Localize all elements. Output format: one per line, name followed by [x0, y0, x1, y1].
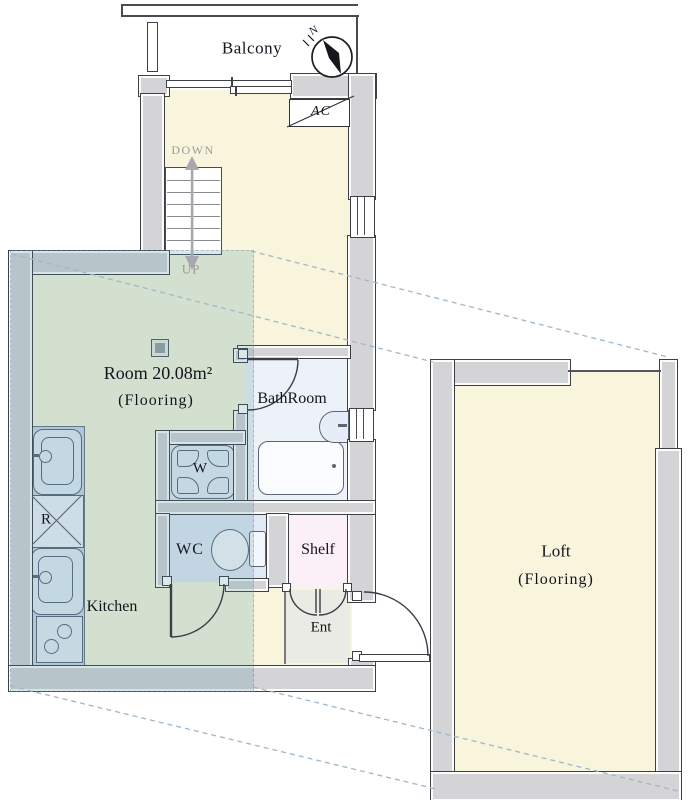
window-mullion	[231, 77, 233, 87]
kitchen-label: Kitchen	[87, 599, 138, 615]
wall	[140, 93, 165, 262]
washer-label: W	[193, 462, 207, 477]
refrigerator-label: R	[41, 513, 51, 528]
compass-north-label: N	[308, 24, 320, 37]
bathtub	[258, 441, 344, 495]
window-glass-line	[364, 197, 365, 235]
floor-plan: Balcony N AC DOWN UP Room 20.08m² (Floor…	[0, 0, 688, 800]
bathtub-drain	[332, 464, 336, 468]
window-glass-line	[363, 409, 364, 439]
door-hinge	[352, 591, 362, 601]
balcony-pier	[147, 22, 158, 72]
door-hinge	[282, 583, 291, 592]
loft-label: Loft	[541, 543, 570, 560]
wall	[655, 448, 682, 800]
wall	[347, 439, 376, 603]
entrance-step-line	[284, 590, 286, 664]
loft-sublabel: (Flooring)	[518, 572, 594, 588]
entrance-label: Ent	[311, 621, 332, 636]
door-hinge	[343, 583, 352, 592]
wall	[430, 359, 455, 800]
wall	[348, 73, 376, 200]
wall	[266, 513, 289, 588]
balcony-label: Balcony	[222, 40, 282, 57]
wall	[659, 359, 678, 451]
bathroom-window	[349, 408, 374, 442]
entrance-door-leaf	[359, 654, 430, 662]
shelf-label: Shelf	[301, 542, 335, 558]
wc-label: WC	[176, 542, 204, 558]
stairs-up-label: UP	[182, 263, 201, 276]
staircase	[165, 167, 222, 255]
balcony-sliding-window	[230, 86, 292, 94]
loft-footprint-overlay	[10, 250, 254, 692]
main-room-sublabel: (Flooring)	[118, 393, 194, 409]
balcony-wall-line-top	[121, 4, 358, 6]
loft-open-edge	[568, 370, 661, 372]
wall	[430, 771, 682, 800]
main-room-label: Room 20.08m²	[104, 364, 212, 382]
balcony-wall-line-right	[356, 15, 358, 74]
compass-icon	[303, 35, 352, 77]
stairs-down-label: DOWN	[171, 144, 214, 156]
loft-projection-line	[10, 686, 436, 789]
balcony-wall-line-inner	[121, 15, 359, 17]
ac-label: AC	[311, 105, 331, 119]
wall	[237, 345, 351, 359]
wall	[347, 235, 376, 411]
bath-sink	[319, 411, 349, 443]
bathroom-label: BathRoom	[257, 391, 326, 407]
balcony-wall-line-left	[121, 4, 123, 16]
side-window	[350, 196, 375, 238]
window-glass-line	[357, 197, 358, 235]
window-mullion	[235, 86, 237, 96]
bath-sink-tap	[338, 424, 347, 427]
window-glass-line	[356, 409, 357, 439]
